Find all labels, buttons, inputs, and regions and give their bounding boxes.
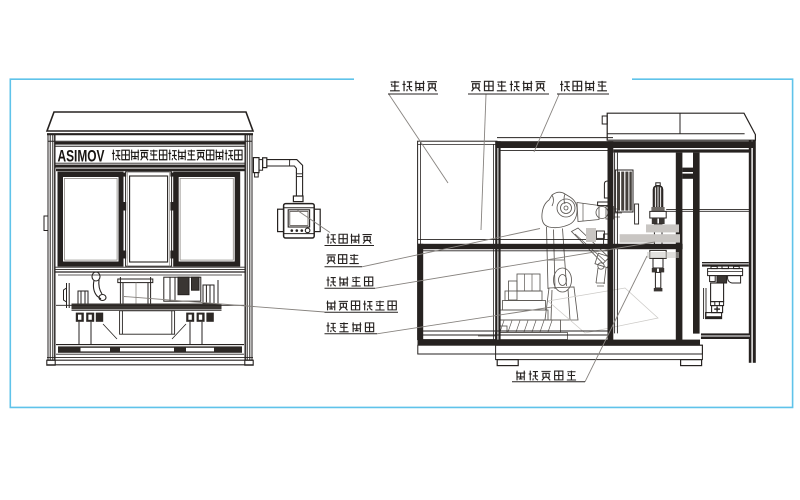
svg-text:ASIMOV: ASIMOV bbox=[58, 147, 105, 165]
